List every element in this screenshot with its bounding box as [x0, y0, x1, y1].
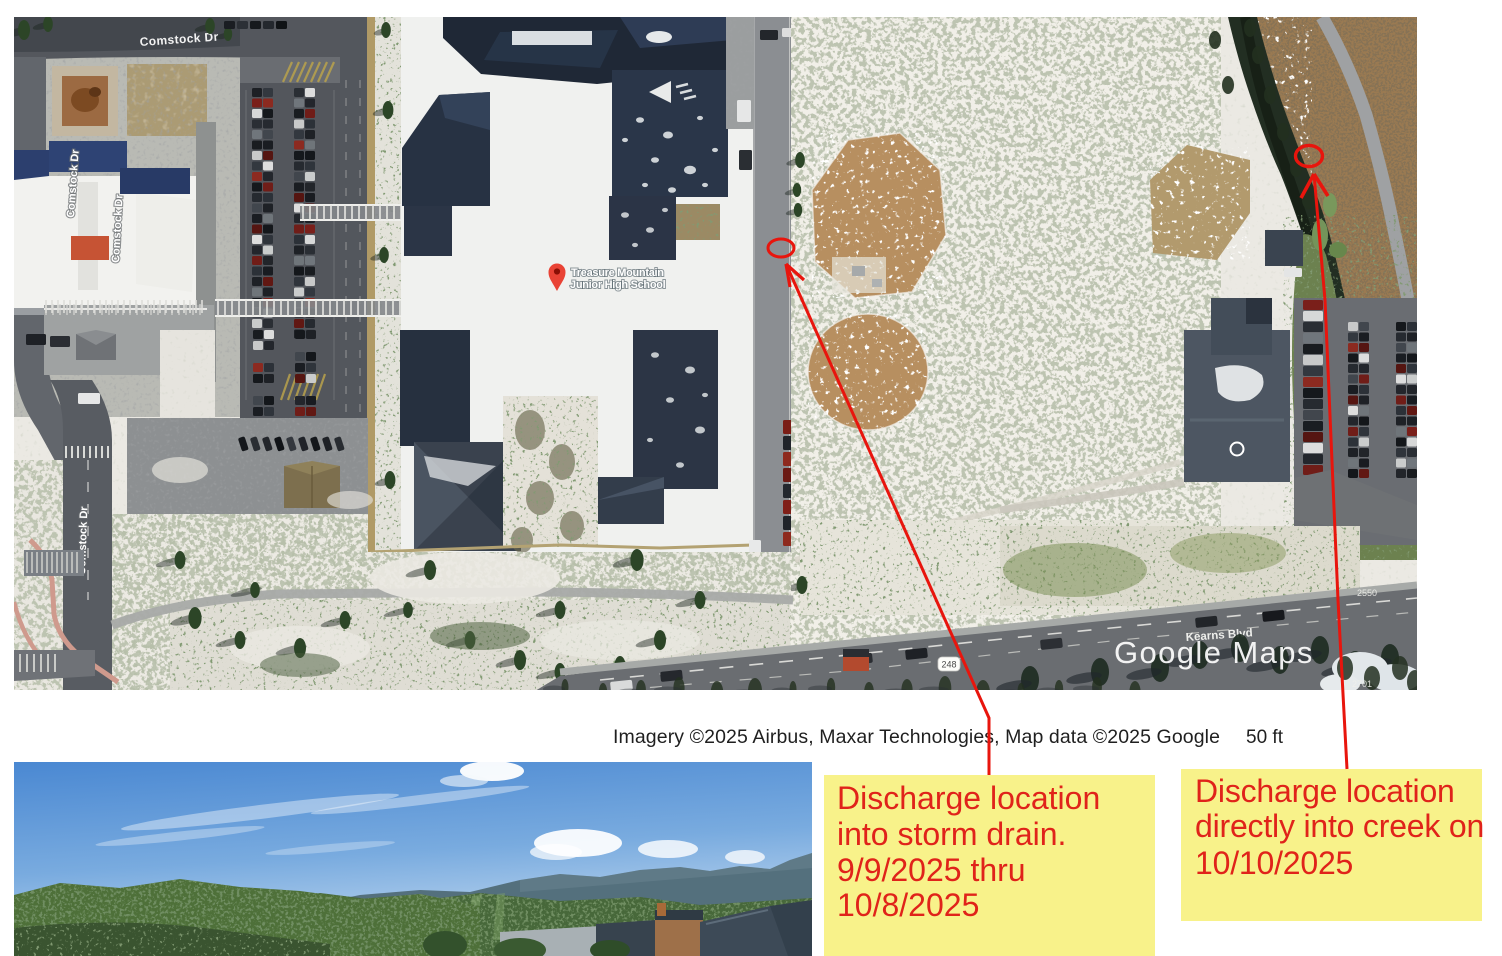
- svg-text:Discharge location: Discharge location: [1195, 773, 1455, 809]
- svg-text:10/8/2025: 10/8/2025: [837, 887, 979, 923]
- svg-text:Google Maps: Google Maps: [1114, 635, 1314, 670]
- svg-text:Discharge location: Discharge location: [837, 780, 1100, 816]
- svg-text:50 ft: 50 ft: [1246, 727, 1284, 748]
- svg-text:2550: 2550: [1357, 588, 1377, 598]
- svg-text:10/10/2025: 10/10/2025: [1195, 845, 1353, 881]
- svg-text:2701: 2701: [1352, 679, 1372, 689]
- svg-text:directly into creek on: directly into creek on: [1195, 808, 1484, 844]
- svg-text:into storm drain.: into storm drain.: [837, 816, 1066, 852]
- svg-text:Junior High School: Junior High School: [570, 279, 666, 291]
- svg-text:248: 248: [941, 660, 956, 670]
- svg-text:Imagery ©2025 Airbus, Maxar Te: Imagery ©2025 Airbus, Maxar Technologies…: [613, 726, 1220, 748]
- svg-text:Treasure Mountain: Treasure Mountain: [571, 267, 664, 279]
- svg-text:9/9/2025 thru: 9/9/2025 thru: [837, 852, 1026, 888]
